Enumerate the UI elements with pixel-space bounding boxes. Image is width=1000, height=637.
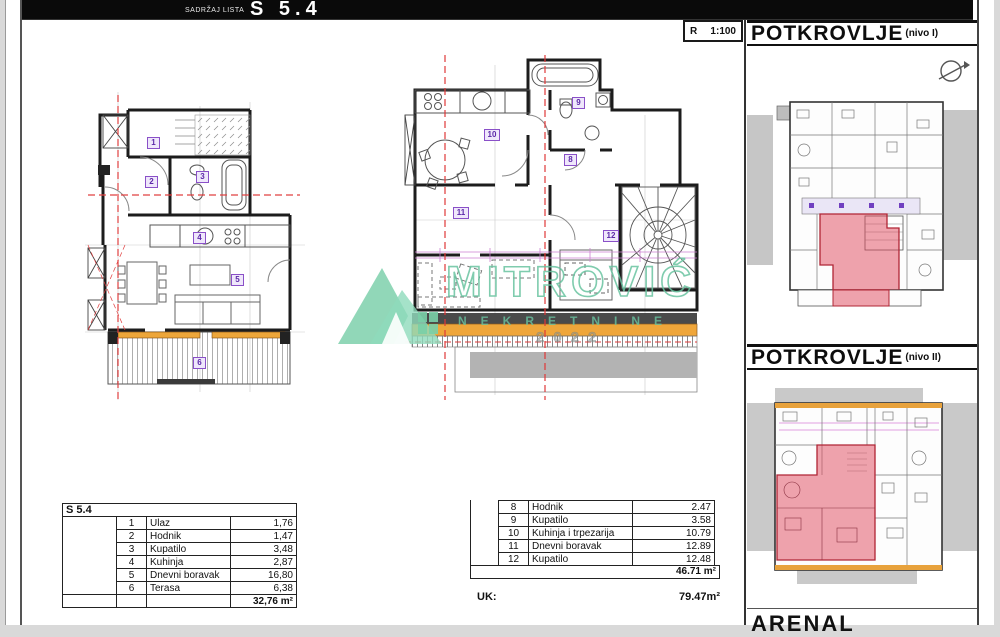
row-num: 9	[499, 514, 529, 527]
row-num: 8	[499, 501, 529, 514]
row-value: 2.47	[633, 501, 715, 514]
kitchen-dining	[415, 90, 530, 189]
room-label-9: 9	[572, 97, 585, 109]
room-label-11: 11	[453, 207, 469, 219]
row-value: 3,48	[231, 543, 297, 556]
sheet-border-outer	[5, 0, 6, 625]
windows	[88, 115, 128, 330]
row-name: Terasa	[147, 582, 231, 595]
row-value: 10.79	[633, 527, 715, 540]
room-label-8: 8	[564, 154, 577, 166]
scale-box: R 1:100	[683, 20, 743, 42]
row-value: 12.48	[633, 553, 715, 566]
gray-band-bottom	[797, 570, 917, 584]
panel-title-suffix: (nivo II)	[905, 352, 941, 363]
room-label-3: 3	[196, 171, 209, 183]
row-name: Kuhinja	[147, 556, 231, 569]
spiral-staircase	[622, 187, 695, 288]
wall-notch	[98, 165, 110, 175]
row-name: Hodnik	[529, 501, 633, 514]
panel-title-text: POTKROVLJE	[751, 22, 903, 46]
room-label-12: 12	[603, 230, 619, 242]
row-num: 3	[117, 543, 147, 556]
row-value: 1,76	[231, 517, 297, 530]
row-num: 1	[117, 517, 147, 530]
room-label-4: 4	[193, 232, 206, 244]
row-name: Kupatilo	[147, 543, 231, 556]
panel-title-text: POTKROVLJE	[751, 346, 903, 370]
gray-band-right	[942, 403, 977, 551]
area-table-total: 32,76 m²	[231, 595, 297, 608]
area-table-level1: S 5.4 1 Ulaz 1,76 2 Hodnik 1,47 3 Kupati…	[62, 503, 297, 608]
panel-divider	[744, 19, 746, 625]
scale-letter: R	[690, 26, 697, 37]
row-name: Kupatilo	[529, 553, 633, 566]
row-value: 2,87	[231, 556, 297, 569]
row-num: 12	[499, 553, 529, 566]
sheet-title: S 5.4	[250, 0, 322, 19]
table-empty-cell	[117, 595, 147, 608]
table-spacer-cell	[63, 517, 117, 595]
panel-title-suffix: (nivo I)	[905, 28, 938, 39]
area-table-total: 46.71 m²	[470, 565, 720, 579]
bedroom-furniture	[560, 250, 612, 300]
sheet-border-inner	[20, 0, 22, 625]
row-name: Hodnik	[147, 530, 231, 543]
roof-edge-top	[775, 403, 942, 408]
scale-value: 1:100	[710, 26, 736, 37]
panel-title-level2: POTKROVLJE (nivo II)	[747, 344, 977, 370]
roof-slope-hatch	[195, 115, 250, 155]
room-label-1: 1	[147, 137, 160, 149]
table-spacer-cell	[63, 595, 117, 608]
total-value: 79.47m²	[640, 591, 720, 603]
title-bar-subtitle: SADRŽAJ LISTA	[185, 7, 244, 14]
panel-footer-rule	[747, 608, 977, 609]
kitchen	[150, 225, 290, 247]
room-label-2: 2	[145, 176, 158, 188]
roof-edge	[412, 313, 697, 392]
row-value: 12.89	[633, 540, 715, 553]
bathroom-fixtures	[105, 157, 246, 211]
table-left-rule	[470, 500, 471, 565]
living-room-furniture	[418, 260, 534, 307]
row-name: Dnevni boravak	[529, 540, 633, 553]
panel-footer-text: ARENAL	[751, 611, 855, 637]
panel-right-border	[977, 0, 979, 625]
total-label: UK:	[477, 591, 497, 603]
floor-plan-level2	[400, 55, 700, 400]
row-name: Ulaz	[147, 517, 231, 530]
row-value: 3.58	[633, 514, 715, 527]
title-bar: SADRŽAJ LISTA S 5.4	[22, 0, 973, 19]
north-arrow-icon	[936, 56, 972, 86]
row-num: 11	[499, 540, 529, 553]
gray-band-right	[943, 110, 977, 260]
page-edge-right	[994, 0, 1000, 625]
thumbnail-plan-level2	[747, 378, 977, 618]
area-table-header: S 5.4	[63, 504, 297, 517]
stair-treads	[175, 120, 195, 144]
room-label-5: 5	[231, 274, 244, 286]
gray-band-left	[747, 403, 775, 551]
panel-title-level1: POTKROVLJE (nivo I)	[747, 20, 977, 46]
room-label-10: 10	[484, 129, 500, 141]
gray-band-left	[747, 115, 773, 265]
row-num: 5	[117, 569, 147, 582]
row-num: 2	[117, 530, 147, 543]
roof-edge-bottom	[775, 565, 942, 570]
walls	[415, 60, 697, 310]
row-name: Kupatilo	[529, 514, 633, 527]
living-room-furniture	[118, 260, 290, 324]
row-value: 16,80	[231, 569, 297, 582]
page-background: SADRŽAJ LISTA S 5.4 R 1:100	[0, 0, 1000, 625]
row-value: 6,38	[231, 582, 297, 595]
thumbnail-plan-level1	[747, 90, 977, 340]
room-label-6: 6	[193, 357, 206, 369]
row-value: 1,47	[231, 530, 297, 543]
area-table-level2: 8 Hodnik 2.47 9 Kupatilo 3.58 10 Kuhinja…	[498, 500, 715, 566]
table-empty-cell	[147, 595, 231, 608]
row-name: Kuhinja i trpezarija	[529, 527, 633, 540]
row-num: 4	[117, 556, 147, 569]
row-num: 10	[499, 527, 529, 540]
bathtub	[532, 64, 598, 86]
highlighted-terrace	[833, 290, 889, 306]
row-name: Dnevni boravak	[147, 569, 231, 582]
row-num: 6	[117, 582, 147, 595]
